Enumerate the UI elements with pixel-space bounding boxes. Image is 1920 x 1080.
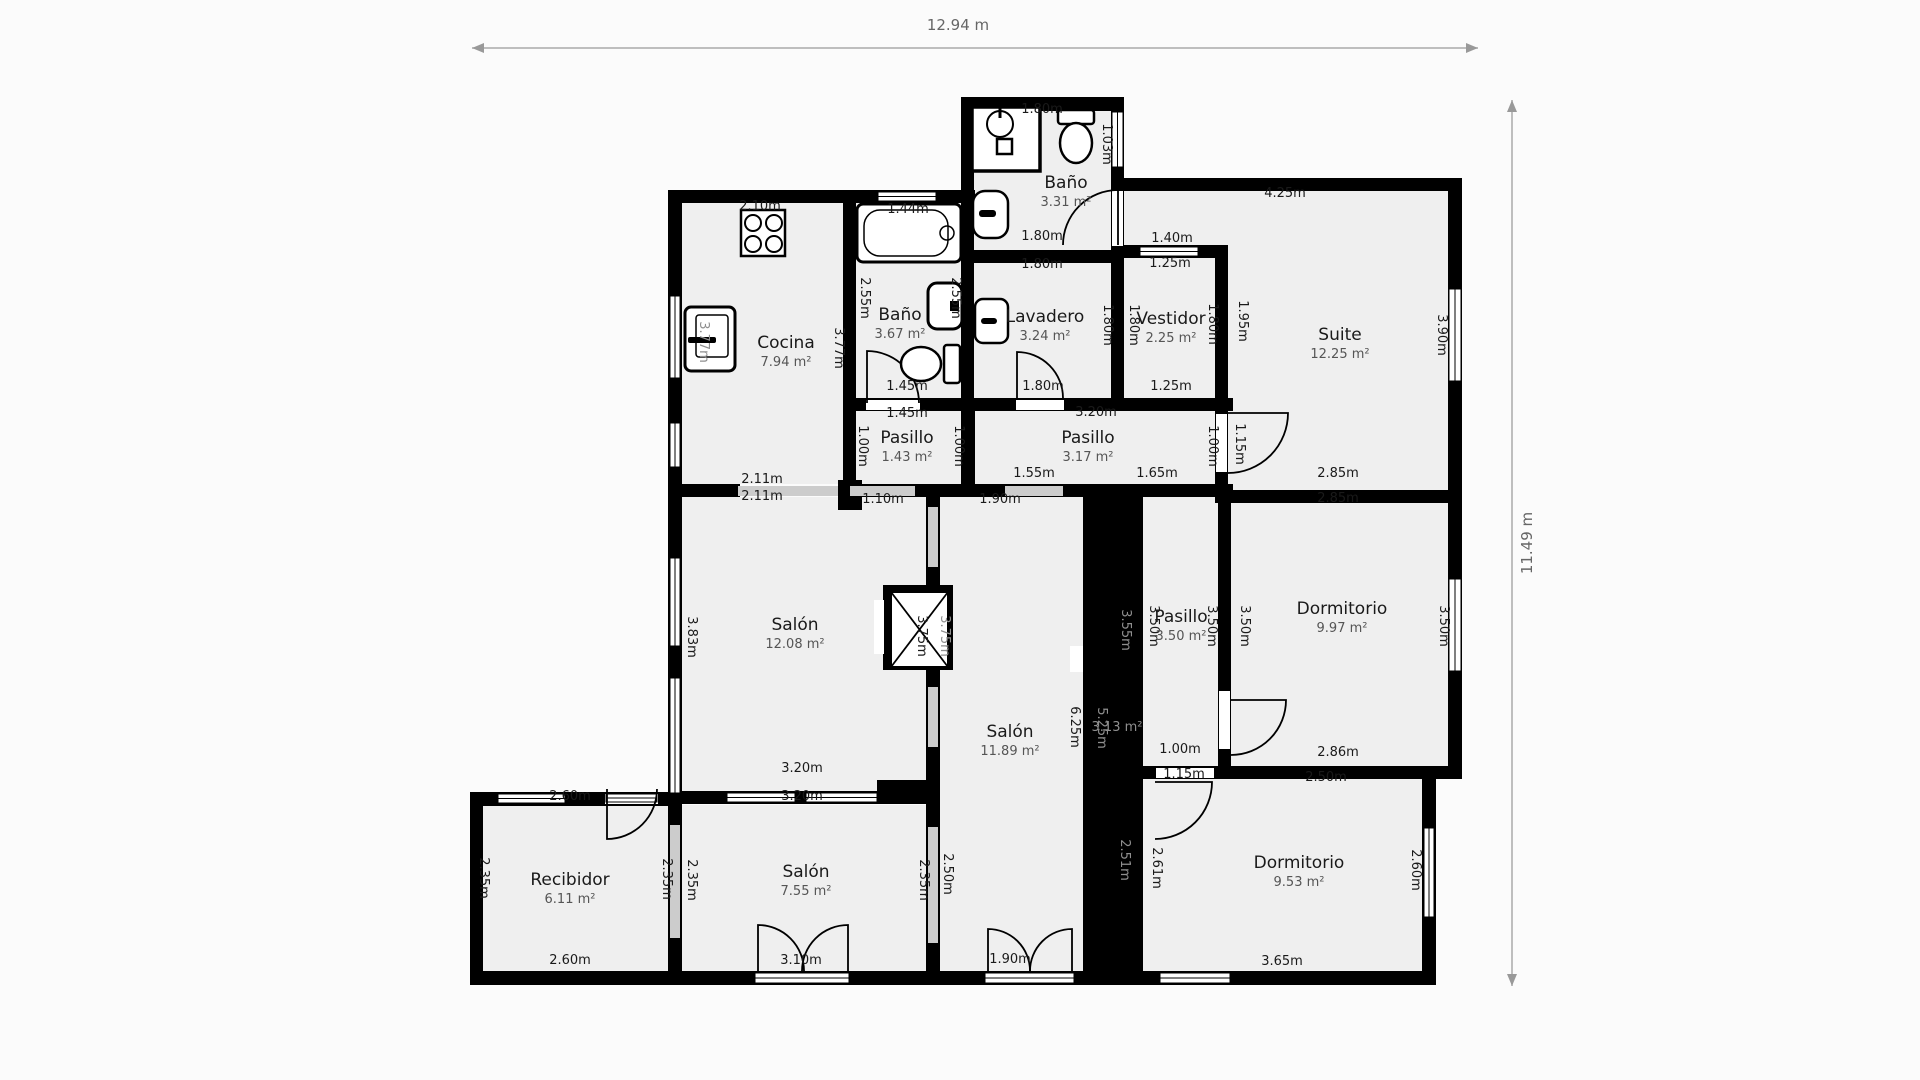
dimension-label: 2.55m	[948, 277, 963, 319]
room-area: 3.50 m²	[1156, 629, 1207, 644]
floor-plan-canvas: 1.80m1.03m1.80m1.80m2.10m1.44m2.55m2.55m…	[0, 0, 1920, 1080]
room-label: Baño3.31 m²	[1041, 173, 1092, 210]
dimension-label: 2.50m	[1305, 770, 1347, 785]
dimension-label: 1.80m	[1021, 102, 1063, 117]
arrow-down-icon	[1507, 974, 1517, 986]
room-label: Suite12.25 m²	[1310, 325, 1369, 362]
room-area: 12.25 m²	[1310, 347, 1369, 362]
room-area: 3.17 m²	[1063, 450, 1114, 465]
room-area: 3.67 m²	[875, 327, 926, 342]
dimension-label: 3.20m	[781, 761, 823, 776]
room-name: Lavadero	[1006, 307, 1085, 327]
toilet-bowl-icon	[1060, 123, 1092, 163]
dimension-label: 2.35m	[916, 859, 931, 901]
dimension-label: 2.11m	[741, 472, 783, 487]
dimension-label: 3.55m	[1118, 609, 1133, 651]
dimension-label: 1.90m	[979, 492, 1021, 507]
dimension-label: 3.77m	[696, 321, 711, 363]
window-icon	[1449, 289, 1461, 381]
room-name: Vestidor	[1136, 309, 1205, 329]
dimension-label: 2.60m	[549, 953, 591, 968]
room-label: Pasillo1.43 m²	[880, 428, 933, 465]
room-name: Baño	[878, 305, 921, 325]
room-label: Salón11.89 m²	[980, 722, 1039, 759]
dimension-label: 2.85m	[1317, 491, 1359, 506]
window-icon	[1424, 828, 1434, 917]
room-label: Salón7.55 m²	[781, 862, 832, 899]
dimension-label: 1.15m	[1163, 767, 1205, 782]
toilet-bowl-icon	[901, 347, 941, 381]
room-area: 2.25 m²	[1146, 331, 1197, 346]
dimension-label: 1.90m	[989, 952, 1031, 967]
wall-opening	[928, 507, 938, 567]
window-icon	[670, 678, 680, 793]
dimension-label: 3.20m	[1075, 405, 1117, 420]
room-name: Dormitorio	[1297, 599, 1388, 619]
dimension-label: 1.25m	[1150, 379, 1192, 394]
dimension-label: 3.90m	[1434, 314, 1449, 356]
room-name: Suite	[1318, 325, 1361, 345]
room-name: Salón	[782, 862, 829, 882]
room-name: Pasillo	[1154, 607, 1207, 627]
dimension-label: 1.44m	[887, 202, 929, 217]
dimension-label: 3.77m	[831, 327, 846, 369]
dimension-label: 1.00m	[1159, 742, 1201, 757]
door-gap	[1016, 400, 1064, 410]
room-label: Baño3.67 m²	[875, 305, 926, 342]
dimension-label: 1.10m	[862, 492, 904, 507]
room-area: 3.31 m²	[1041, 195, 1092, 210]
room-area: 1.43 m²	[882, 450, 933, 465]
window-icon	[1160, 973, 1230, 983]
dimension-label: 1.80m	[1021, 229, 1063, 244]
arrow-right-icon	[1466, 43, 1478, 53]
door-gap	[1219, 691, 1230, 749]
room-name: Cocina	[757, 333, 815, 353]
dimension-label: 2.50m	[940, 853, 955, 895]
window-icon	[670, 423, 680, 467]
bidet-tap-icon	[979, 210, 996, 217]
dimension-label: 2.11m	[741, 489, 783, 504]
wall	[470, 971, 1434, 985]
dimension-label: 1.80m	[1205, 303, 1220, 345]
dimension-label: 1.25m	[1149, 256, 1191, 271]
window-icon	[985, 973, 1074, 983]
room-area: 12.08 m²	[765, 637, 824, 652]
room-label: Pasillo3.17 m²	[1061, 428, 1114, 465]
dimension-label: 1.80m	[1100, 304, 1115, 346]
dimension-label: 2.60m	[1408, 849, 1423, 891]
toilet-tank-icon	[944, 345, 960, 383]
wall	[668, 484, 740, 497]
room-area: 7.94 m²	[761, 355, 812, 370]
floor-plan-page: 1.80m1.03m1.80m1.80m2.10m1.44m2.55m2.55m…	[0, 0, 1920, 1080]
dimension-label: 1.40m	[1151, 231, 1193, 246]
overall-width-dimension: 12.94 m	[927, 16, 989, 34]
dimension-label: 3.13 m²	[1092, 720, 1143, 735]
window-icon	[606, 794, 657, 802]
room-label: Vestidor2.25 m²	[1136, 309, 1205, 346]
room-area: 3.24 m²	[1020, 329, 1071, 344]
dimension-label: 3.83m	[684, 616, 699, 658]
dimension-label: 3.65m	[1261, 954, 1303, 969]
dimension-label: 1.45m	[886, 379, 928, 394]
dimension-label: 3.75m	[937, 615, 952, 657]
dimension-label: 1.55m	[1013, 466, 1055, 481]
dimension-label: 1.80m	[1021, 257, 1063, 272]
room-name: Salón	[986, 722, 1033, 742]
window-icon	[670, 558, 680, 646]
room-name: Baño	[1044, 173, 1087, 193]
room-area: 6.11 m²	[545, 892, 596, 907]
dimension-label: 2.86m	[1317, 745, 1359, 760]
arrow-up-icon	[1507, 100, 1517, 112]
door-gap	[1070, 646, 1083, 672]
dimension-label: 1.95m	[1235, 300, 1250, 342]
overall-height-dimension: 11.49 m	[1518, 512, 1536, 574]
room-label: Salón12.08 m²	[765, 615, 824, 652]
room-area: 11.89 m²	[980, 744, 1039, 759]
dimension-label: 4.25m	[1264, 186, 1306, 201]
dimension-label: 3.50m	[1436, 605, 1451, 647]
room-label: Pasillo3.50 m²	[1154, 607, 1207, 644]
window-icon	[670, 296, 680, 378]
wall	[1448, 178, 1462, 779]
arrow-left-icon	[472, 43, 484, 53]
dimension-label: 3.75m	[914, 615, 929, 657]
dimension-label: 1.00m	[855, 425, 870, 467]
dimension-label: 2.35m	[684, 859, 699, 901]
room-area: 7.55 m²	[781, 884, 832, 899]
dimension-label: 2.61m	[1149, 847, 1164, 889]
dimension-label: 1.80m	[1022, 379, 1064, 394]
dimension-label: 3.50m	[1237, 605, 1252, 647]
dimension-label: 2.60m	[549, 789, 591, 804]
room-area: 9.53 m²	[1274, 875, 1325, 890]
room-label: Cocina7.94 m²	[757, 333, 815, 370]
stove-burner-icon	[766, 236, 782, 252]
dimension-label: 1.00m	[951, 425, 966, 467]
laundry-tap-icon	[981, 318, 997, 324]
stove-burner-icon	[745, 236, 761, 252]
dimension-label: 2.51m	[1117, 839, 1132, 881]
room-name: Pasillo	[1061, 428, 1114, 448]
dimension-label: 3.20m	[781, 789, 823, 804]
room-name: Recibidor	[530, 870, 609, 890]
room-area: 9.97 m²	[1317, 621, 1368, 636]
dimension-label: 1.03m	[1099, 123, 1114, 165]
room-name: Salón	[771, 615, 818, 635]
window-icon	[755, 973, 849, 983]
dimension-label: 3.10m	[780, 953, 822, 968]
stove-burner-icon	[745, 215, 761, 231]
dimension-label: 6.25m	[1067, 706, 1082, 748]
dimension-label: 2.10m	[739, 199, 781, 214]
window-icon	[1140, 247, 1198, 256]
wall-opening	[928, 687, 938, 747]
window-icon	[878, 192, 936, 201]
dimension-label: 2.55m	[857, 277, 872, 319]
dimension-label: 1.15m	[1232, 423, 1247, 465]
dimension-label: 2.35m	[659, 858, 674, 900]
dimension-label: 2.35m	[476, 857, 491, 899]
room-name: Dormitorio	[1254, 853, 1345, 873]
stove-burner-icon	[766, 215, 782, 231]
room-name: Pasillo	[880, 428, 933, 448]
chimney-vent-icon	[874, 600, 884, 654]
dimension-label: 1.45m	[886, 406, 928, 421]
dimension-label: 1.00m	[1205, 425, 1220, 467]
dimension-label: 1.65m	[1136, 466, 1178, 481]
dimension-label: 2.85m	[1317, 466, 1359, 481]
